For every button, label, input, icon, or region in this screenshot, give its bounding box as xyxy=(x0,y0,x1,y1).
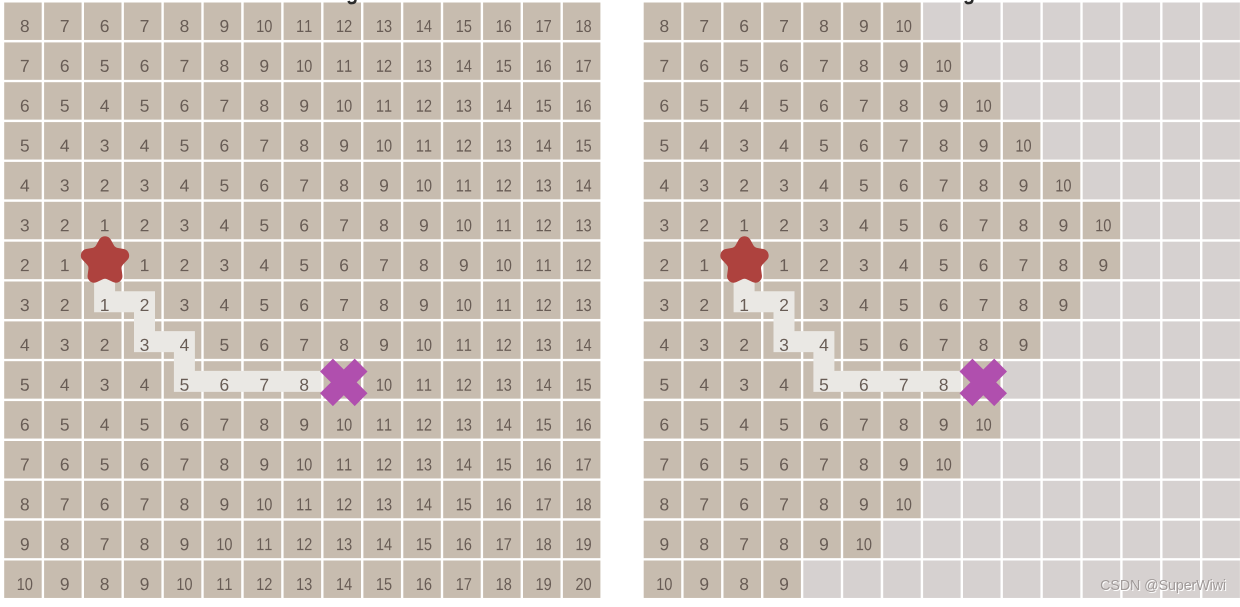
svg-text:CSDN @SuperWiwi: CSDN @SuperWiwi xyxy=(1100,578,1226,594)
